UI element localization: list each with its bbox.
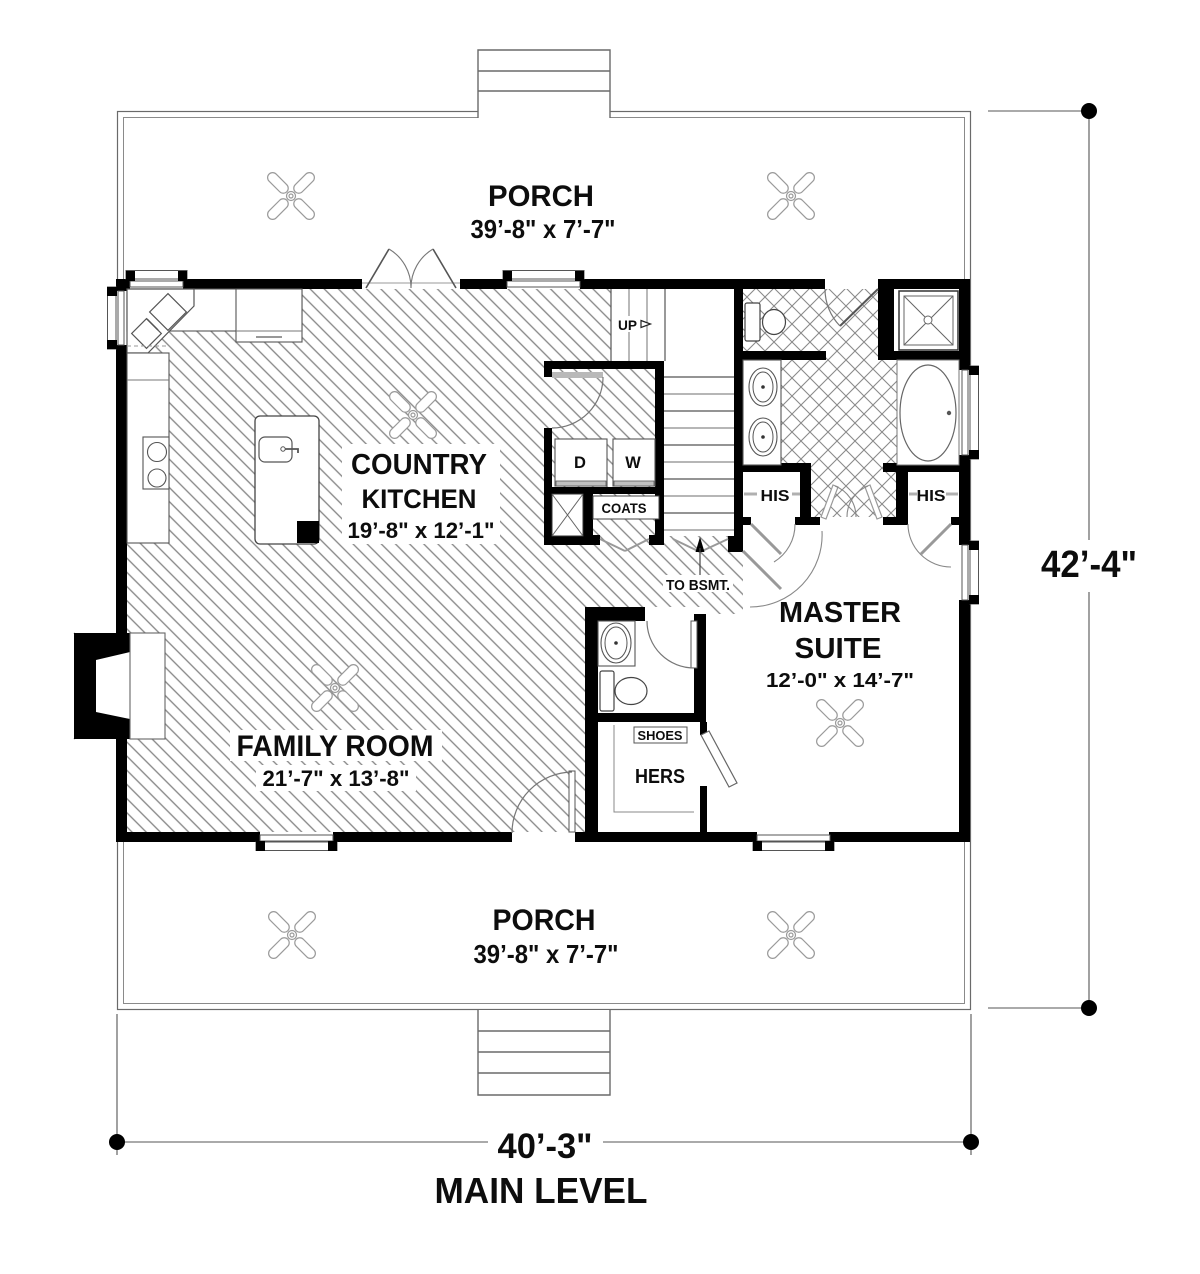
svg-text:HERS: HERS [635,766,685,788]
svg-text:19’-8" x 12’-1": 19’-8" x 12’-1" [348,518,495,543]
svg-text:COATS: COATS [602,500,647,516]
svg-text:FAMILY ROOM: FAMILY ROOM [237,730,434,763]
svg-text:D: D [574,454,586,472]
svg-text:MAIN LEVEL: MAIN LEVEL [435,1170,648,1211]
svg-text:42’-4": 42’-4" [1041,544,1137,586]
svg-text:KITCHEN: KITCHEN [362,484,477,514]
svg-text:MASTER: MASTER [779,597,901,629]
svg-text:21’-7" x 13’-8": 21’-7" x 13’-8" [263,766,410,791]
svg-text:SHOES: SHOES [638,728,683,743]
svg-text:SUITE: SUITE [795,633,882,665]
svg-text:HIS: HIS [761,488,790,505]
svg-text:W: W [625,454,641,472]
svg-text:PORCH: PORCH [493,904,596,937]
svg-text:12’-0" x 14’-7": 12’-0" x 14’-7" [766,670,914,692]
svg-text:UP: UP [618,317,637,333]
svg-text:COUNTRY: COUNTRY [351,449,487,481]
svg-text:HIS: HIS [917,488,946,505]
svg-text:40’-3": 40’-3" [498,1127,593,1166]
svg-text:39’-8" x 7’-7": 39’-8" x 7’-7" [474,939,619,969]
svg-text:TO BSMT.: TO BSMT. [666,578,730,594]
svg-text:PORCH: PORCH [488,180,594,213]
svg-text:39’-8" x 7’-7": 39’-8" x 7’-7" [471,214,616,244]
